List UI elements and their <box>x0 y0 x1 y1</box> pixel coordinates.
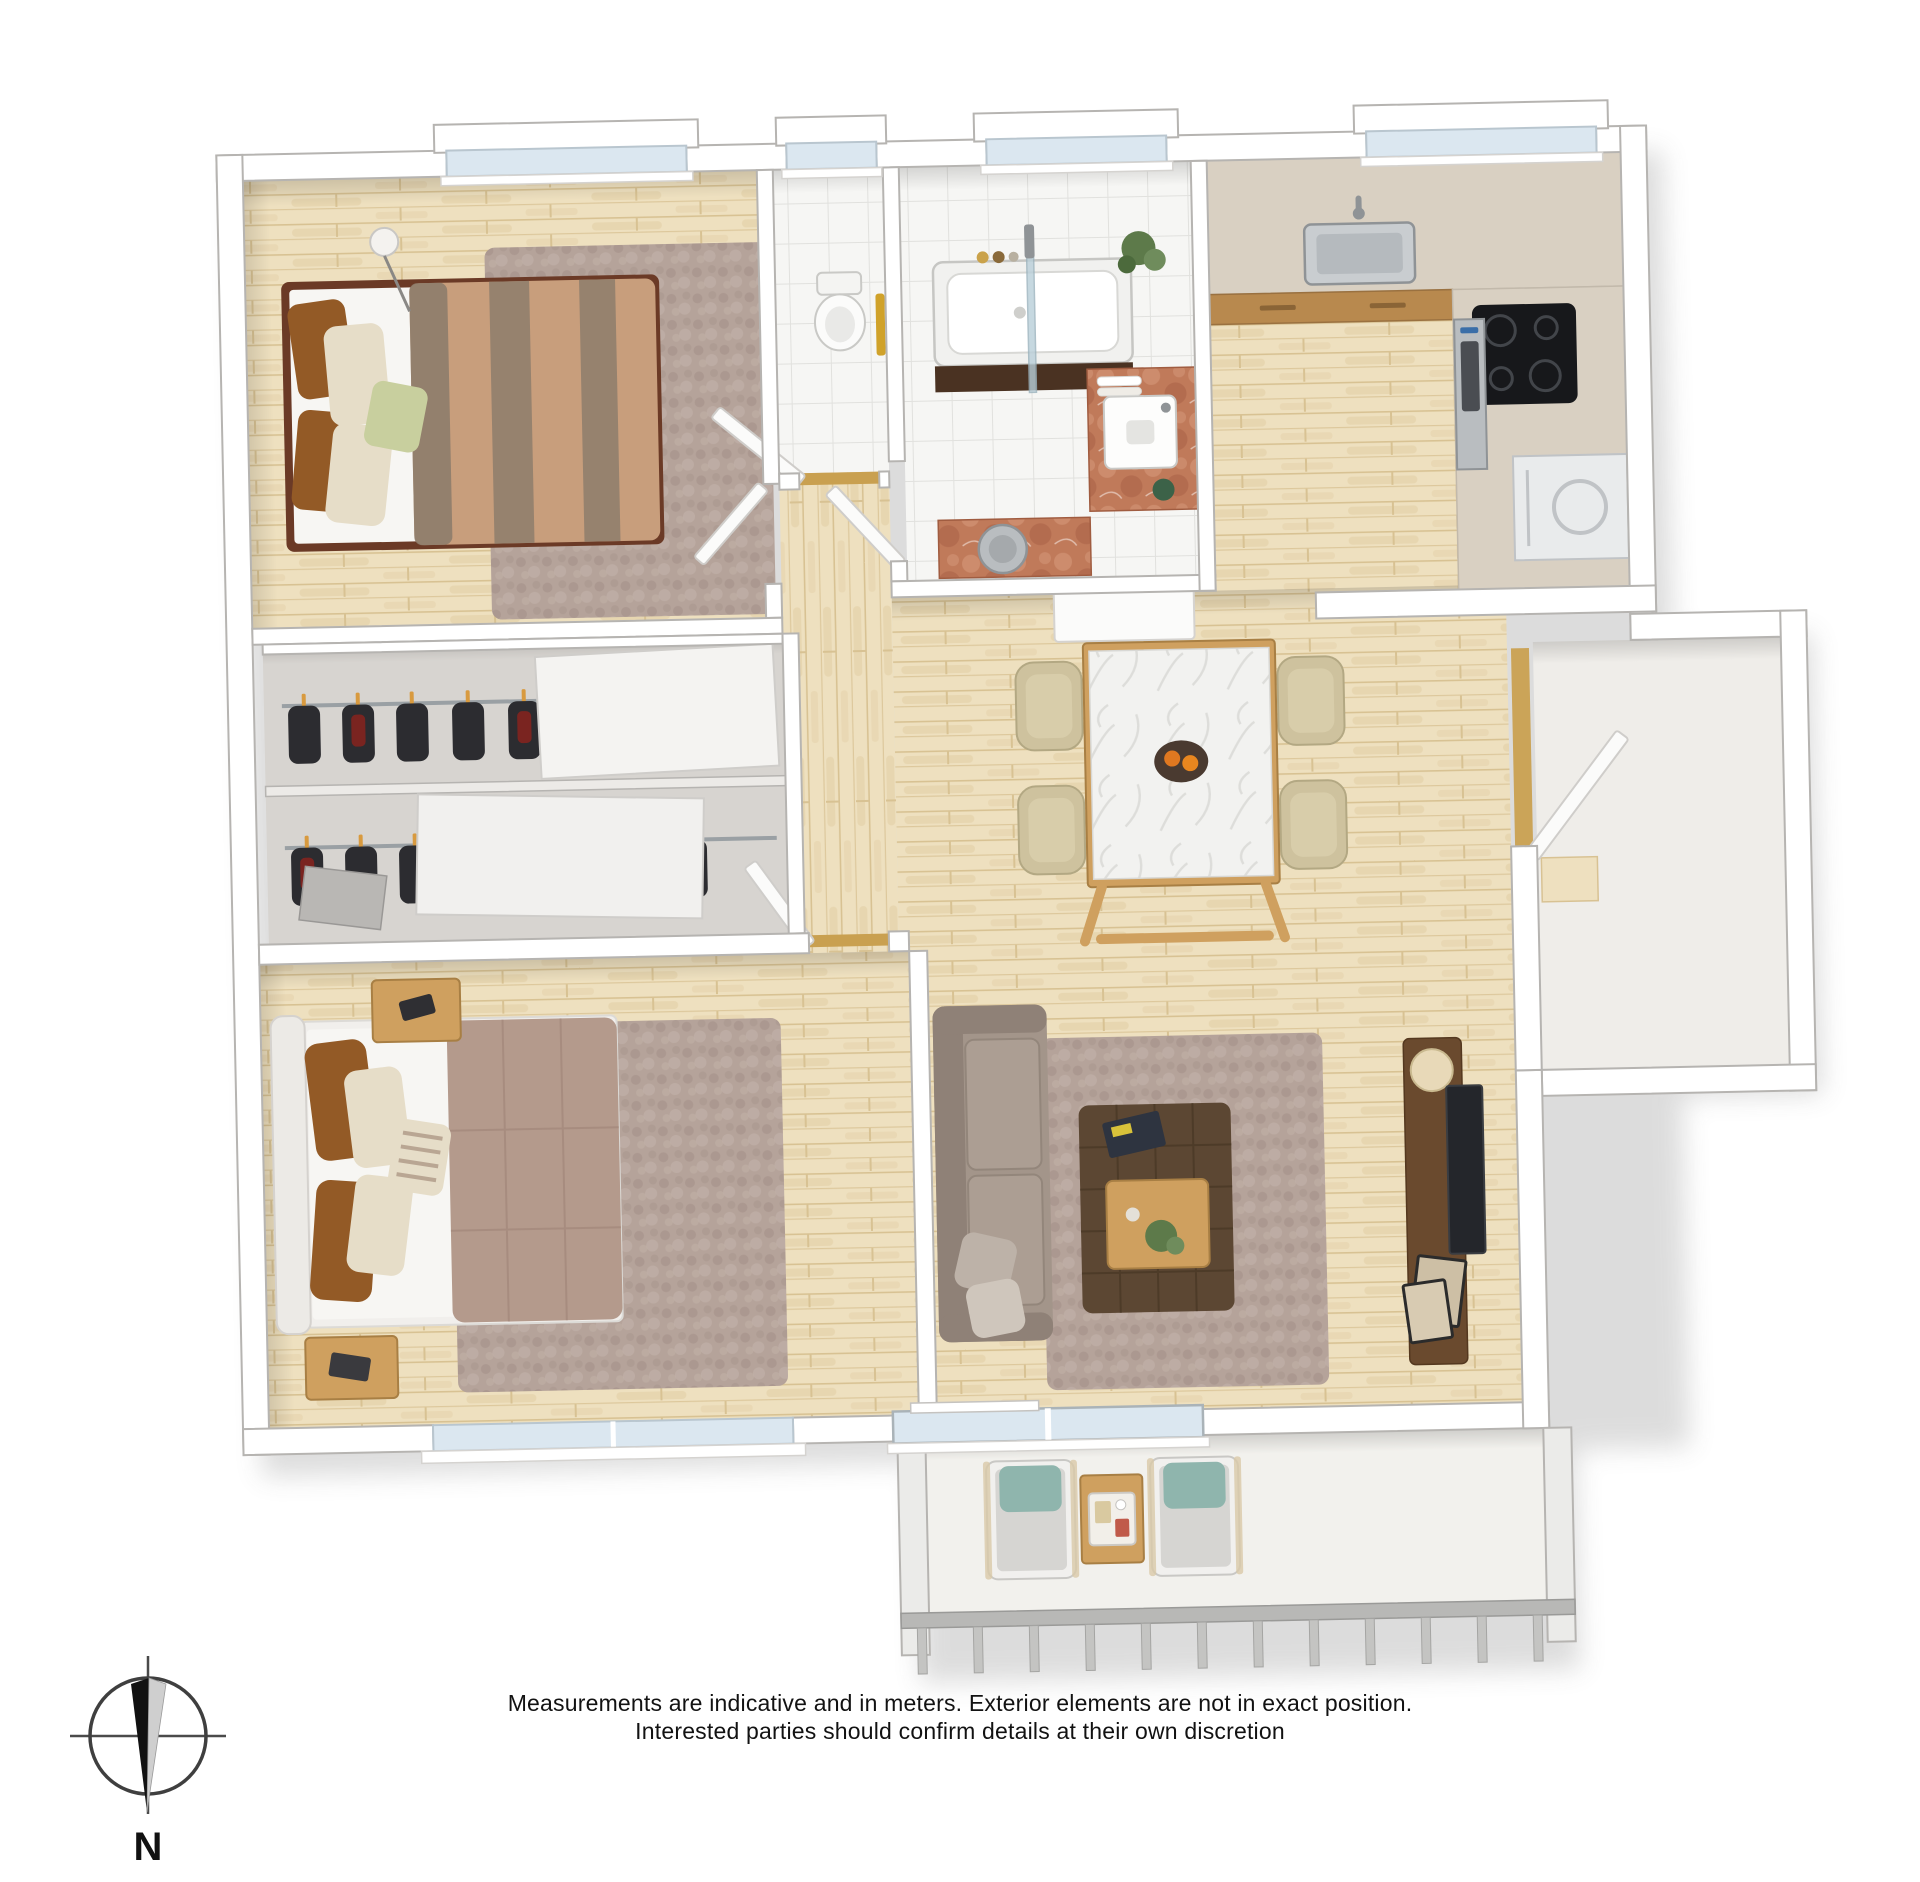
wc-threshold <box>799 472 879 486</box>
vanity <box>1087 367 1198 511</box>
disclaimer: Measurements are indicative and in meter… <box>0 1689 1920 1745</box>
serving-tray <box>1106 1179 1210 1269</box>
sphere-lamp <box>1410 1049 1453 1092</box>
entry-floor <box>1533 637 1790 1070</box>
bedroom-bottom-threshold <box>809 934 889 948</box>
shower-column <box>1024 224 1035 258</box>
oven <box>1454 319 1487 470</box>
white-appliance <box>1513 454 1629 560</box>
lounge-chair-left <box>983 1460 1079 1580</box>
floorplan-page: N Measurements are indicative and in met… <box>0 0 1920 1882</box>
yellow-towel <box>875 293 885 355</box>
window-kitchen <box>1354 100 1609 166</box>
closet-sliding-panel-2 <box>416 794 704 918</box>
nightstand-bottom <box>305 1336 398 1400</box>
entry-wood-step <box>1541 857 1598 902</box>
balcony-side-table <box>1080 1474 1144 1563</box>
dining-chair-left-1 <box>1015 661 1083 750</box>
bedroom-bottom-bed <box>270 1009 623 1334</box>
dining-chair-right-1 <box>1277 656 1345 745</box>
tv-screen <box>1446 1085 1486 1254</box>
floorplan-3d-render: N <box>0 0 1920 1882</box>
sideboard <box>1054 587 1195 642</box>
headboard <box>270 1016 311 1335</box>
closet-sliding-panel-1 <box>535 644 779 779</box>
dining-chair-left-2 <box>1018 785 1086 874</box>
nightstand-top <box>372 979 461 1043</box>
mauve-duvet <box>447 1017 623 1322</box>
shoe-shelf <box>299 866 387 929</box>
toilet <box>814 272 866 351</box>
bedroom-top-bed <box>281 274 665 552</box>
laundry-counter <box>938 517 1091 578</box>
bath-shelf-bottles <box>977 251 1019 264</box>
vanity-towels <box>1097 376 1141 386</box>
cooktop <box>1472 303 1578 405</box>
ottoman-coffee-table <box>1078 1102 1234 1313</box>
lounge-chair-right <box>1147 1456 1243 1576</box>
compass: N <box>70 1656 226 1869</box>
sofa <box>932 1004 1053 1342</box>
window-bedroom-bottom <box>421 1417 806 1463</box>
kitchen-cabinet-front <box>1209 290 1453 325</box>
sofa-pillow-2 <box>964 1277 1027 1340</box>
compass-north-label: N <box>134 1825 163 1869</box>
window-wc <box>776 115 887 178</box>
window-bedroom-top <box>434 119 699 186</box>
disclaimer-line-1: Measurements are indicative and in meter… <box>0 1689 1920 1717</box>
window-bathroom <box>974 109 1179 174</box>
dining-chair-right-2 <box>1280 780 1348 869</box>
disclaimer-line-2: Interested parties should confirm detail… <box>0 1717 1920 1745</box>
picture-frame-2 <box>1403 1280 1453 1343</box>
